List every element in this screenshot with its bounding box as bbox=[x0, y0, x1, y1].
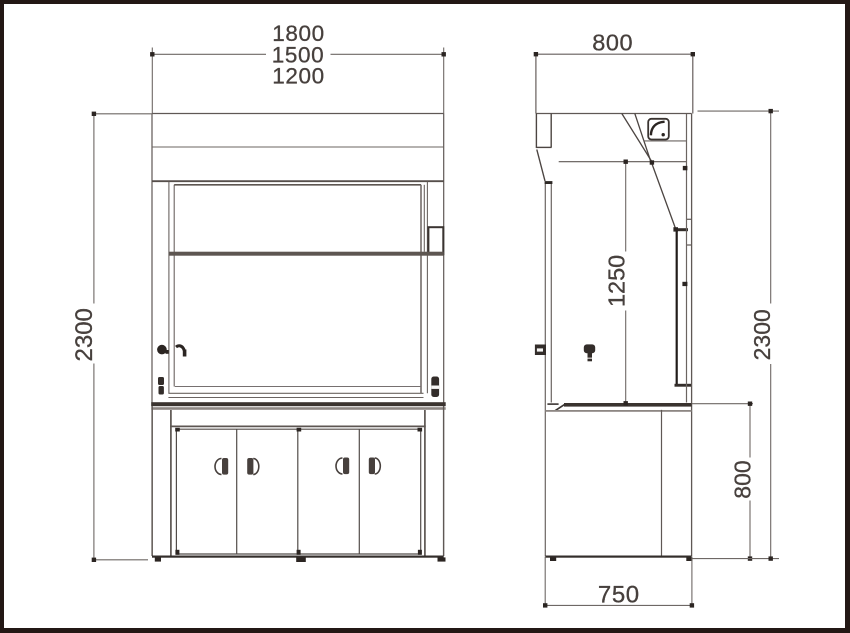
svg-text:2300: 2300 bbox=[749, 309, 775, 360]
svg-text:2300: 2300 bbox=[71, 308, 98, 361]
svg-text:1200: 1200 bbox=[272, 63, 324, 88]
svg-text:800: 800 bbox=[592, 29, 633, 55]
svg-text:800: 800 bbox=[730, 460, 756, 498]
svg-text:750: 750 bbox=[598, 581, 640, 608]
svg-text:1250: 1250 bbox=[603, 255, 629, 307]
